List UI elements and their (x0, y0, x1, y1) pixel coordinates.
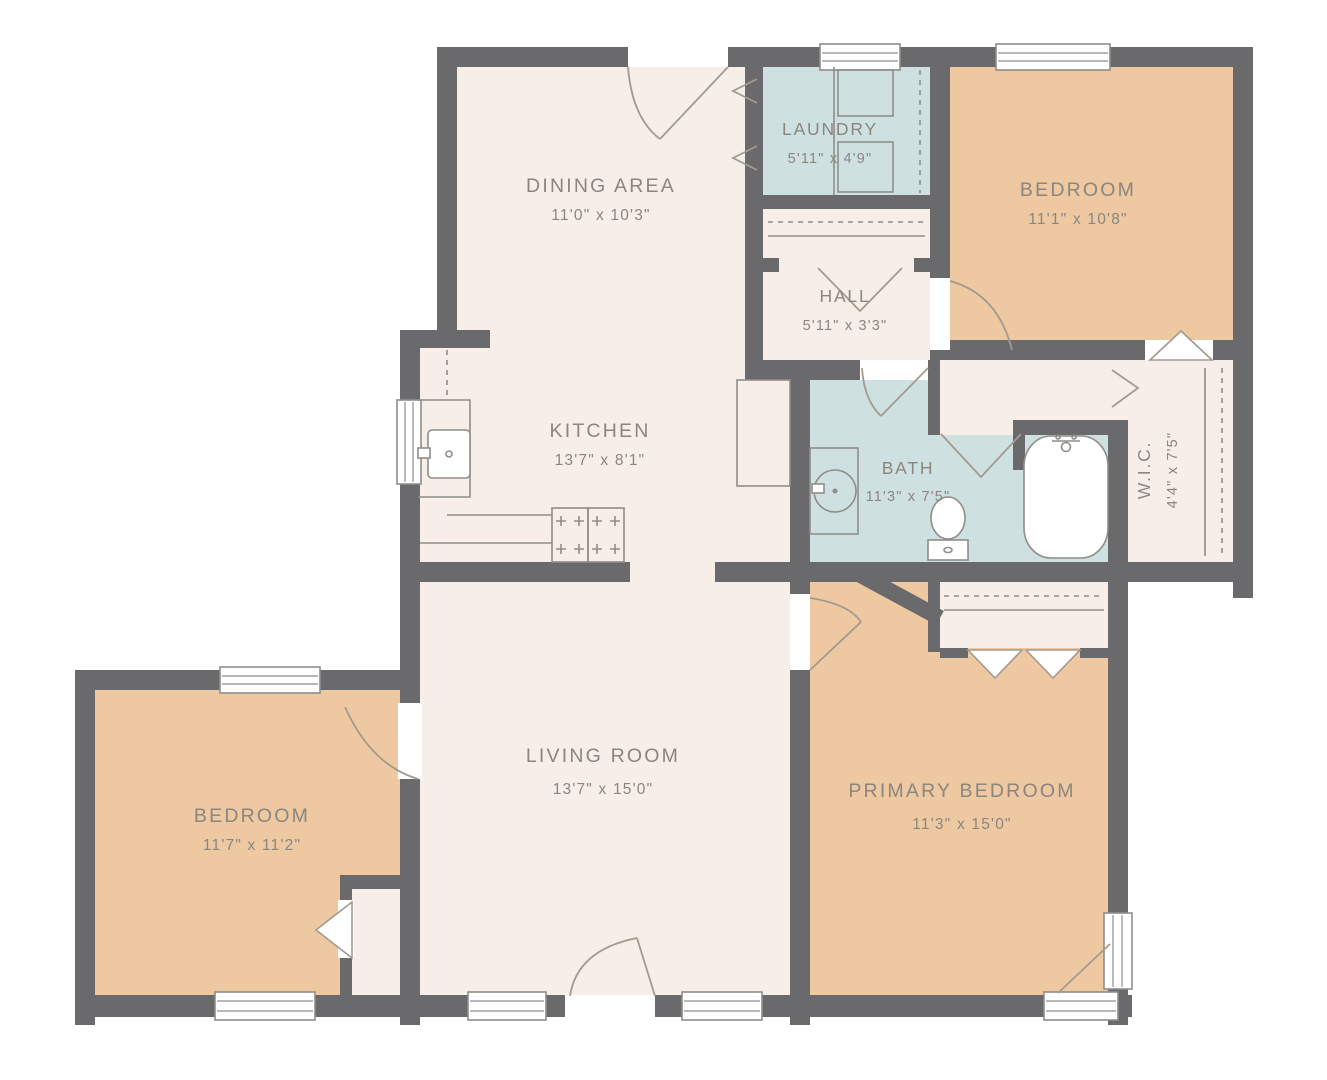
bedroom-top-floor (950, 67, 1233, 340)
laundry-window (820, 44, 900, 70)
kitchen-floor (418, 330, 790, 562)
bath-label: BATH (882, 458, 935, 478)
bedroom-top-label: BEDROOM (1020, 179, 1136, 201)
kitchen-dims: 13'7" x 8'1" (555, 452, 646, 469)
front-entry-opening (565, 995, 655, 1017)
left-bedroom-bottom-window (215, 992, 315, 1020)
dining-area-label: DINING AREA (526, 175, 676, 197)
left-bedroom-door-opening (398, 703, 422, 779)
kitchen-sink-icon (428, 430, 470, 478)
primary-door-opening (790, 594, 810, 670)
dining-area-dims: 11'0" x 10'3" (551, 207, 650, 224)
primary-right-window (1104, 913, 1132, 989)
bathtub-icon (1024, 435, 1108, 558)
entry-opening-dining (628, 47, 728, 67)
vanity-faucet-icon (812, 484, 824, 493)
bedroom-top-door-opening (930, 278, 950, 350)
bath-dims: 11'3" x 7'5" (866, 489, 951, 505)
floor-plan: DINING AREA 11'0" x 10'3" LAUNDRY 5'11" … (0, 0, 1327, 1080)
left-bedroom-closet-floor (352, 889, 400, 995)
living-room-floor (420, 562, 790, 995)
wic-label: W.I.C. (1134, 441, 1154, 499)
primary-closet-floor (940, 582, 1108, 648)
bedroom-left-label: BEDROOM (194, 805, 310, 827)
kitchen-window (397, 400, 421, 484)
kitchen-faucet-icon (418, 448, 430, 458)
primary-bedroom-dims: 11'3" x 15'0" (912, 816, 1011, 833)
living-room-window-left (468, 992, 546, 1020)
hall-floor (763, 209, 930, 360)
kitchen-label: KITCHEN (550, 420, 651, 442)
wic-dims: 4'4" x 7'5" (1165, 432, 1181, 509)
primary-bedroom-label: PRIMARY BEDROOM (848, 780, 1075, 802)
living-room-dims: 13'7" x 15'0" (553, 781, 654, 798)
laundry-label: LAUNDRY (782, 119, 878, 139)
laundry-dims: 5'11" x 4'9" (788, 151, 873, 167)
bedroom-top-dims: 11'1" x 10'8" (1028, 211, 1127, 228)
bedroom-top-window (996, 44, 1110, 70)
floor-plan-page: DINING AREA 11'0" x 10'3" LAUNDRY 5'11" … (0, 0, 1327, 1080)
primary-bottom-window (1044, 992, 1118, 1020)
hall-label: HALL (820, 286, 871, 306)
living-room-label: LIVING ROOM (526, 745, 680, 767)
bedroom-left-dims: 11'7" x 11'2" (203, 837, 301, 854)
hall-bath-door-opening (860, 362, 928, 378)
left-bedroom-top-window (220, 667, 320, 693)
living-room-window-right (682, 992, 762, 1020)
toilet-icon (928, 497, 968, 560)
hall-dims: 5'11" x 3'3" (803, 318, 888, 334)
